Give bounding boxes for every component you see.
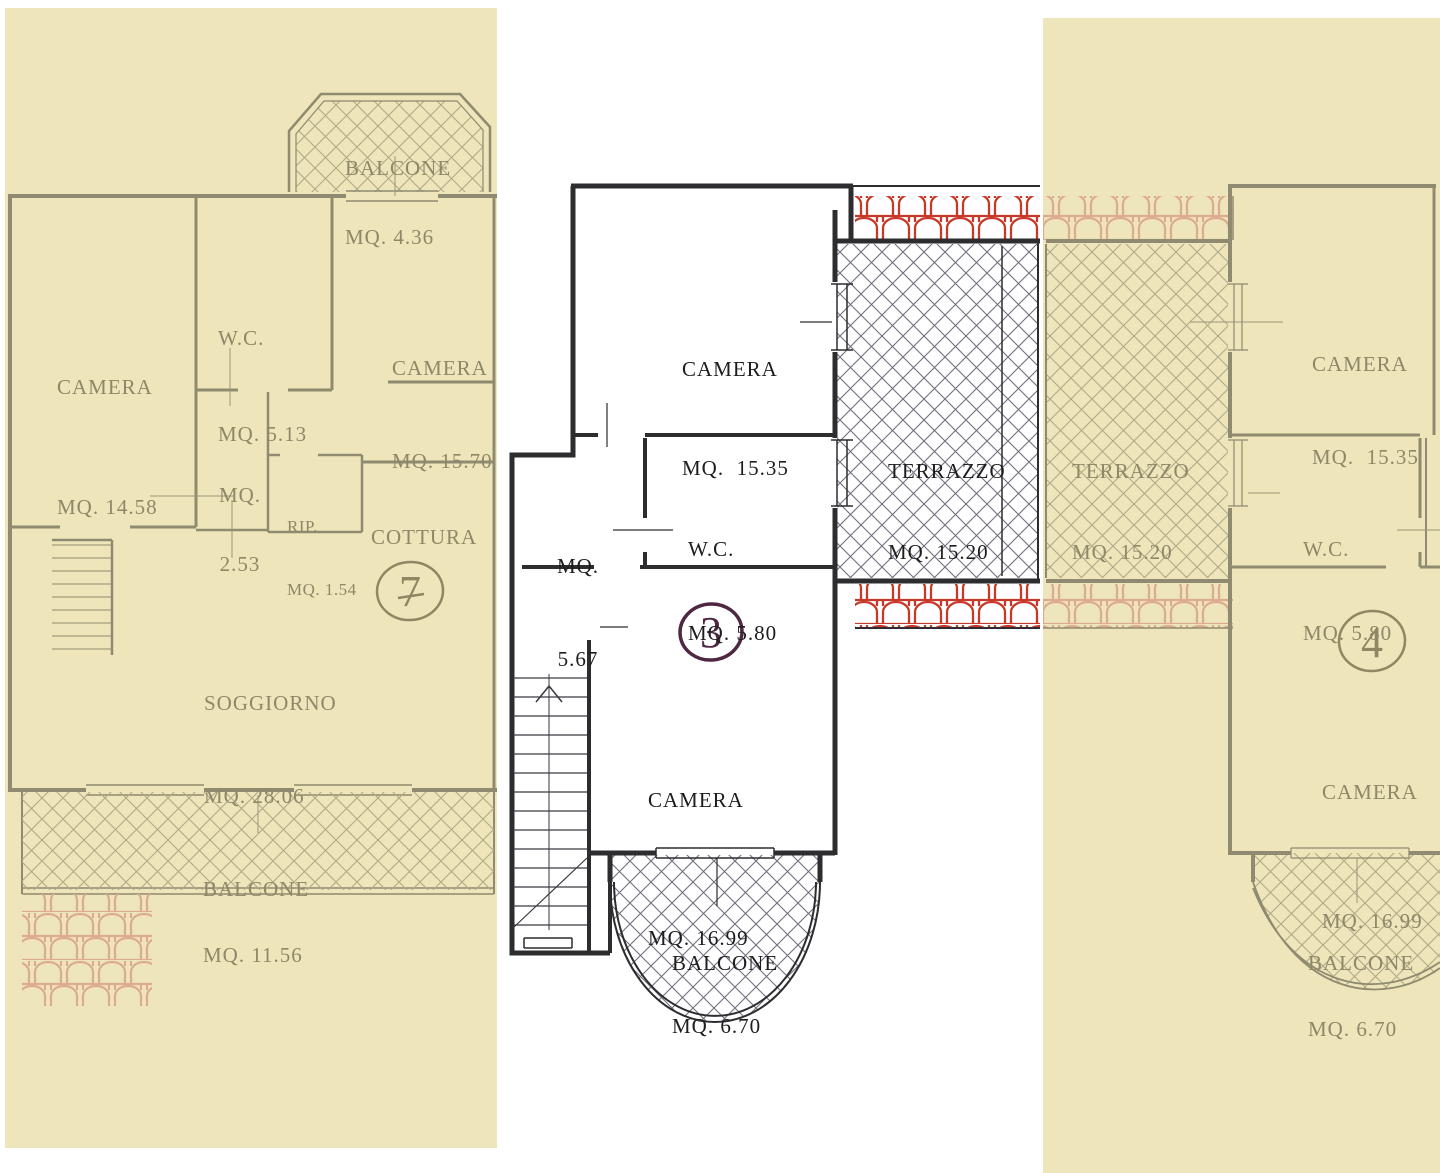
room-name: CAMERA: [682, 353, 789, 386]
room-name: CAMERA: [1312, 349, 1419, 380]
room-name: TERRAZZO: [1072, 458, 1190, 485]
room-area: MQ. 11.56: [203, 944, 309, 966]
label-unit4-terrazzo: TERRAZZO MQ. 15.20: [1072, 404, 1190, 620]
label-unit7-cottura: COTTURA: [371, 480, 477, 641]
room-area: 2.53: [219, 553, 261, 576]
room-area: MQ. 15.35: [1312, 442, 1419, 473]
room-name: MQ.: [557, 551, 599, 582]
room-name: BALCONE: [345, 157, 451, 180]
room-name: MQ.: [219, 484, 261, 507]
room-name: CAMERA: [648, 777, 749, 823]
room-area: MQ. 5.80: [1303, 619, 1392, 647]
roof-tiles-top-strip: [855, 196, 1040, 240]
room-name: CAMERA: [1322, 771, 1423, 814]
room-area: MQ. 5.80: [688, 619, 777, 647]
room-area: MQ. 15.20: [888, 539, 1006, 566]
room-name: BALCONE: [672, 953, 778, 974]
room-area: MQ. 14.58: [57, 487, 158, 527]
label-unit7-camera-1: CAMERA MQ. 14.58: [57, 287, 158, 607]
label-unit4-balcone: BALCONE MQ. 6.70: [1308, 908, 1414, 1084]
label-unit3-balcone: BALCONE MQ. 6.70: [672, 911, 778, 1079]
label-unit3-disimpegno: MQ. 5.67: [557, 489, 599, 737]
room-name: TERRAZZO: [888, 458, 1006, 485]
room-name: RIP.: [287, 516, 357, 537]
room-area: MQ. 15.20: [1072, 539, 1190, 566]
room-name: SOGGIORNO: [204, 688, 337, 719]
room-area: MQ. 15.70: [392, 446, 493, 477]
room-name: W.C.: [218, 322, 307, 354]
room-name: BALCONE: [1308, 952, 1414, 974]
label-unit3-wc: W.C. MQ. 5.80: [688, 479, 777, 703]
room-area: MQ. 28.06: [204, 781, 337, 812]
label-unit7-balcone-top: BALCONE MQ. 4.36: [345, 111, 451, 295]
label-unit3-terrazzo: TERRAZZO MQ. 15.20: [888, 404, 1006, 620]
room-name: W.C.: [1303, 535, 1392, 563]
room-name: W.C.: [688, 535, 777, 563]
label-unit7-rip: RIP. MQ. 1.54: [287, 474, 357, 642]
label-unit4-wc: W.C. MQ. 5.80: [1303, 479, 1392, 703]
unit-7-roof-tiles: [22, 894, 152, 1006]
room-area: MQ. 4.36: [345, 226, 451, 249]
room-name: CAMERA: [57, 367, 158, 407]
room-name: COTTURA: [371, 526, 477, 549]
room-name: BALCONE: [203, 878, 309, 900]
floor-plan-page: 7: [0, 0, 1440, 1173]
room-area: MQ. 6.70: [672, 1016, 778, 1037]
room-area: MQ. 1.54: [287, 579, 357, 600]
label-unit7-disimpegno: MQ. 2.53: [219, 438, 261, 622]
room-name: CAMERA: [392, 353, 493, 384]
unit-4-roof-tiles-top: [1043, 196, 1233, 240]
room-area: MQ. 6.70: [1308, 1018, 1414, 1040]
room-area: 5.67: [557, 644, 599, 675]
label-unit7-balcone-bottom: BALCONE MQ. 11.56: [203, 834, 309, 1010]
